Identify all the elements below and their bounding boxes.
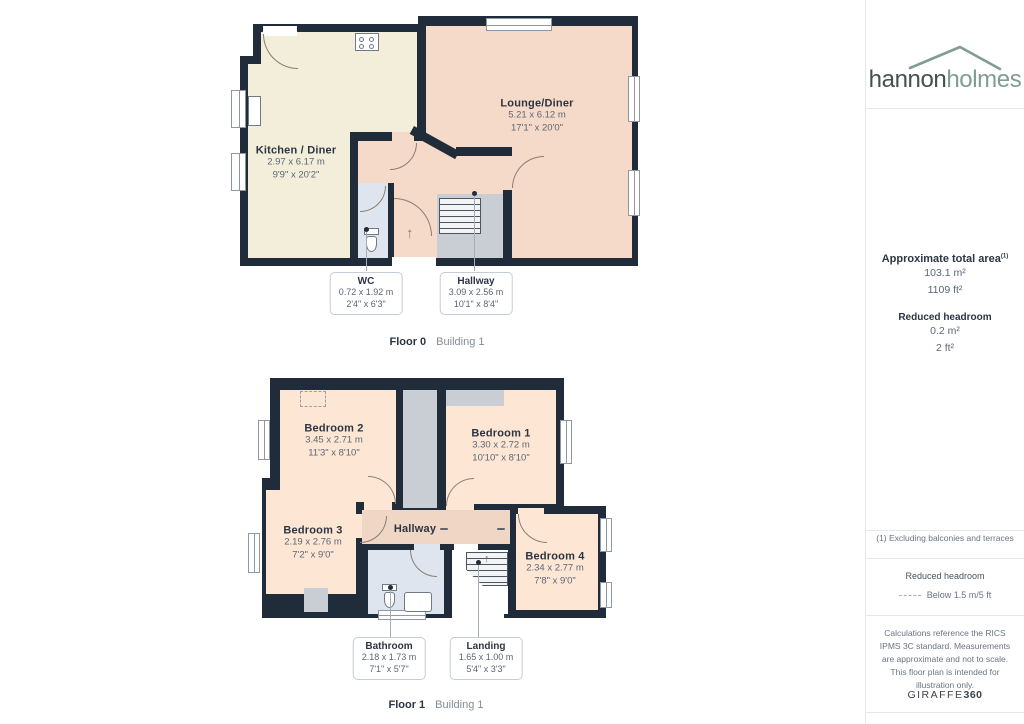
hallway1-label: Hallway [394,523,436,535]
bathroom-metric: 2.18 x 1.73 m [362,652,417,664]
total-area-sqft: 1109 ft² [866,282,1024,299]
logo-part1: hannon [869,66,947,93]
shaft-area [403,390,437,508]
divider [866,615,1024,616]
landing-imperial: 5'4" x 3'3" [459,664,514,676]
lounge-label: Lounge/Diner 5.21 x 6.12 m 17'1" x 20'0" [500,98,573,135]
hob-burner-icon [369,37,374,42]
hob-burner-icon [369,44,374,49]
window [231,153,246,191]
floorplan-page: ↑ Kitchen / Diner 2.97 x 6.17 m 9'9" x 2… [0,0,1024,724]
area-summary: Approximate total area(1) 103.1 m² 1109 … [866,253,1024,357]
disclaimer-text: Calculations reference the RICS IPMS 3C … [877,627,1013,692]
window [560,420,572,464]
bedroom4-name: Bedroom 4 [525,551,584,563]
window [248,533,260,573]
kitchen-name: Kitchen / Diner [256,145,337,157]
window [628,76,640,122]
hallway-imperial: 10'1" x 8'4" [449,299,504,311]
hob-burner-icon [359,37,364,42]
bedroom2-name: Bedroom 2 [304,423,363,435]
logo-part2: holmes [946,66,1021,93]
reduced-headroom-sqft: 2 ft² [866,340,1024,357]
floor1-label: Floor 1Building 1 [389,699,484,711]
reduced-headroom-dash [497,528,505,530]
lounge-name: Lounge/Diner [500,98,573,110]
lounge-metric: 5.21 x 6.12 m [500,110,573,123]
bedroom2-label: Bedroom 2 3.45 x 2.71 m 11'3" x 8'10" [304,423,363,460]
floor0-name: Floor 0 [390,336,427,348]
bedroom4-metric: 2.34 x 2.77 m [525,563,584,576]
bedroom1-metric: 3.30 x 2.72 m [471,440,530,453]
bedroom3-metric: 2.19 x 2.76 m [283,537,342,550]
divider [866,558,1024,559]
bedroom4-imperial: 7'8" x 9'0" [525,575,584,588]
brand-suffix: 360 [963,689,982,701]
stairs-arrow-icon: ↑ [484,552,490,567]
window [258,420,270,460]
bedroom3-name: Bedroom 3 [283,525,342,537]
window [600,582,612,608]
floor0-building: Building 1 [436,336,484,348]
landing-metric: 1.65 x 1.00 m [459,652,514,664]
total-area-title-text: Approximate total area [882,253,1001,265]
reduced-headroom-title: Reduced headroom [866,312,1024,323]
kitchen-metric: 2.97 x 6.17 m [256,157,337,170]
bedroom2-metric: 3.45 x 2.71 m [304,435,363,448]
wall [456,147,512,156]
bedroom2-imperial: 11'3" x 8'10" [304,447,363,460]
wall [350,141,358,258]
landing-callout: Landing 1.65 x 1.00 m 5'4" x 3'3" [450,637,523,680]
bedroom4-label: Bedroom 4 2.34 x 2.77 m 7'8" x 9'0" [525,551,584,588]
bedroom3-imperial: 7'2" x 9'0" [283,549,342,562]
divider [866,108,1024,109]
divider [866,712,1024,713]
divider [866,530,1024,531]
wc-metric: 0.72 x 1.92 m [339,287,394,299]
floor0-label: Floor 0Building 1 [390,336,485,348]
hob-icon [355,33,379,51]
bathroom-imperial: 7'1" x 5'7" [362,664,417,676]
leader-line [474,196,475,271]
legend-title: Reduced headroom [866,571,1024,581]
wc-callout: WC 0.72 x 1.92 m 2'4" x 6'3" [330,272,403,315]
total-area-sqm: 103.1 m² [866,265,1024,282]
cupboard-outline [300,391,326,407]
entrance-arrow-icon: ↑ [406,226,414,241]
agency-logo: hannonholmes [866,44,1024,102]
legend-label: Below 1.5 m/5 ft [927,590,992,600]
bedroom1-label: Bedroom 1 3.30 x 2.72 m 10'10" x 8'10" [471,428,530,465]
floor1-name: Floor 1 [389,699,426,711]
giraffe360-brand: GIRAFFE360 [866,689,1024,701]
leader-line [478,565,479,637]
agency-logo-text: hannonholmes [866,66,1024,94]
info-sidebar: hannonholmes Approximate total area(1) 1… [865,0,1024,724]
reduced-headroom-area [446,390,504,406]
window [600,518,612,552]
hallway-callout: Hallway 3.09 x 2.56 m 10'1" x 8'4" [440,272,513,315]
kitchen-imperial: 9'9" x 20'2" [256,169,337,182]
dashed-line-icon [899,595,921,596]
bathroom-name: Bathroom [362,641,417,652]
hallway-metric: 3.09 x 2.56 m [449,287,504,299]
reduced-headroom-sqm: 0.2 m² [866,323,1024,340]
hallway-name: Hallway [449,276,504,287]
landing-name: Landing [459,641,514,652]
sink-counter-icon [248,96,261,126]
leader-line [366,232,367,271]
footnote-marker: (1) [1001,253,1008,259]
bedroom1-imperial: 10'10" x 8'10" [471,452,530,465]
window [231,90,246,128]
bathroom-callout: Bathroom 2.18 x 1.73 m 7'1" x 5'7" [353,637,426,680]
reduced-headroom-area [304,588,328,612]
brand-name: GIRAFFE [907,689,963,701]
door-opening [454,544,478,550]
wc-name: WC [339,276,394,287]
hallway1-name: Hallway [394,523,436,535]
window [628,170,640,216]
toilet-icon [366,236,377,252]
legend-row: Below 1.5 m/5 ft [866,590,1024,600]
window [486,18,552,31]
leader-line [390,590,391,637]
wc-imperial: 2'4" x 6'3" [339,299,394,311]
bedroom1-name: Bedroom 1 [471,428,530,440]
total-area-title: Approximate total area(1) [866,253,1024,265]
hob-burner-icon [359,44,364,49]
kitchen-label: Kitchen / Diner 2.97 x 6.17 m 9'9" x 20'… [256,145,337,182]
lounge-imperial: 17'1" x 20'0" [500,122,573,135]
floor1-building: Building 1 [435,699,483,711]
reduced-headroom-dash [440,528,448,530]
reduced-headroom-legend: Reduced headroom Below 1.5 m/5 ft [866,571,1024,600]
bathtub-icon [404,592,432,612]
entrance-opening [392,257,436,268]
wall [503,190,512,258]
area-footnote: (1) Excluding balconies and terraces [872,533,1018,543]
bedroom3-label: Bedroom 3 2.19 x 2.76 m 7'2" x 9'0" [283,525,342,562]
